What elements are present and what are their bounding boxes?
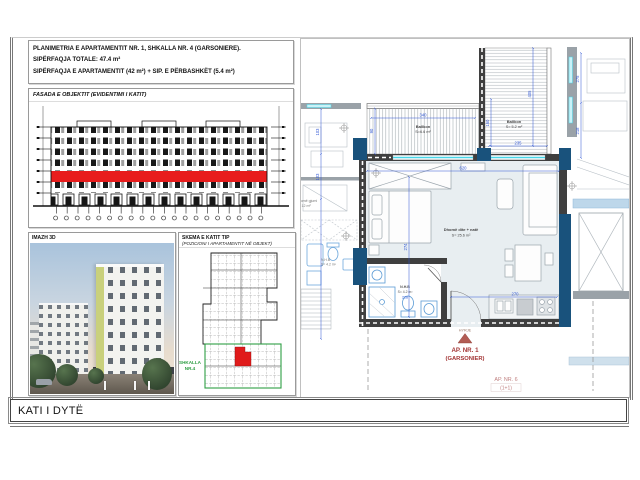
balcony-top: Ballkon S=6.6 m² [367,104,479,155]
balcony-right: Ballkon S= 5.2 m² [485,48,551,154]
dim-235: 235 [515,141,523,146]
floor-plan-drawing: Dhomë gjumi S= 12 m² N.H.B S= 4.2 m² [301,39,629,397]
dim-103a: 103 [315,128,320,136]
wall-windows [393,155,545,160]
dim-274: 274 [403,243,408,251]
balcony-top-area: S=6.6 m² [415,130,431,134]
dim-340: 340 [420,113,428,118]
bollard [104,381,106,390]
floor-title: KATI I DYTË [11,405,83,417]
tree [142,358,172,390]
apartment-type-label: (GARSONIER) [446,356,485,362]
building-elevation-drawing [29,102,293,230]
neighbor-bath-area: S= 4.2 m² [321,263,337,267]
facade-title: FASADA E OBJEKTIT (EVIDENTIMI I KATIT) [29,89,293,102]
neighbor-bedroom-area: S= 12 m² [301,204,311,208]
facade-panel: FASADA E OBJEKTIT (EVIDENTIMI I KATIT) [28,88,294,228]
balcony-right-area: S= 5.2 m² [506,125,523,129]
tree [56,364,78,386]
stair-label-line2: NR.4 [185,366,196,371]
neighbor-stairs [301,289,331,329]
bollard [134,381,136,390]
dim-218: 218 [575,127,580,135]
neighbor-bath-label: N.H.B [321,258,331,262]
entry-arrow-icon [458,334,472,344]
neighbor-apartment-right [567,47,629,365]
neighbor-apartment-number: AP. NR. 6 [494,377,517,383]
plan-title-line1: PLANIMETRIA E APARTAMENTIT NR. 1, SHKALL… [33,44,289,55]
keyplan-cells [203,253,281,388]
apartment-number-label: AP. NR. 1 [451,347,479,354]
neighbor-apartment-type: (1+1) [500,386,512,392]
dim-275: 275 [575,75,580,83]
facade-windows [51,127,267,193]
keyplan-panel: SKEMA E KATIT TIP (POZICIONI I APARTAMEN… [178,232,296,396]
dim-160: 160 [485,119,490,127]
keyplan-title: SKEMA E KATIT TIP [179,233,295,241]
keyplan-subtitle: (POZICIONI I APARTAMENTIT NË OBJEKT) [179,241,295,248]
column-grid-bubbles [51,214,267,222]
render-panel: IMAZH 3D [28,232,176,396]
neighbor-apartment-left: Dhomë gjumi S= 12 m² N.H.B S= 4.2 m² [301,103,361,329]
bathroom-area: S= 4.2 m² [398,290,414,294]
dim-620: 620 [460,166,468,171]
dim-405: 405 [527,90,532,98]
balcony-right-label: Ballkon [507,119,522,124]
living-room-label: Dhomë dite + natë [444,227,479,232]
ground-floor-storefronts [51,193,267,206]
keyplan-drawing: SHKALLA NR.4 [179,248,295,392]
dim-bath-width: 228 [402,296,408,300]
dim-270: 270 [512,292,520,297]
roof-parapets [77,121,240,127]
sheet-title-bar: KATI I DYTË [10,399,627,422]
render-title: IMAZH 3D [29,233,175,242]
bollard [148,381,150,390]
entry-label: HYRJE [459,329,472,333]
drawing-info-box: PLANIMETRIA E APARTAMENTIT NR. 1, SHKALL… [28,40,294,84]
floor-plan-panel: Dhomë gjumi S= 12 m² N.H.B S= 4.2 m² [300,38,630,398]
neighbor-bedroom-label: Dhomë gjumi [301,199,317,203]
tree [88,368,104,384]
highlighted-floor-band [51,171,267,182]
living-room-area: S= 25.6 m² [452,234,471,238]
building-3d-render [30,243,174,394]
dim-103b: 103 [315,173,320,181]
stair-label-line1: SHKALLA [179,360,202,365]
car [36,379,52,385]
bathroom: N.H.B S= 4.2 m² 228 [366,264,441,319]
frame-bottom-line [10,426,629,427]
balcony-top-label: Ballkon [416,124,431,129]
dim-90: 90 [369,128,374,133]
plan-title-line3: SIPËRFAQJA E APARTAMENTIT (42 m²) + SIP.… [33,67,289,78]
plan-title-line2: SIPËRFAQJA TOTALE: 47.4 m² [33,55,289,66]
